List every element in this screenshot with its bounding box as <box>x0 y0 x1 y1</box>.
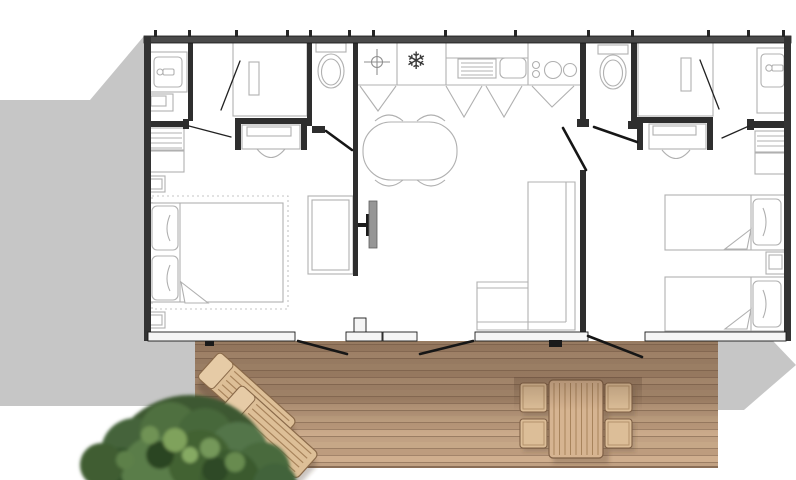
tv-bracket-bar <box>366 214 369 236</box>
dressing-table-top <box>247 127 291 136</box>
toilet-tank <box>316 43 346 52</box>
partition-wall-right <box>580 170 586 332</box>
wall-cap <box>747 119 754 130</box>
nook-wall <box>637 117 643 150</box>
master-closet <box>233 42 307 116</box>
tv-screen <box>369 201 377 248</box>
patio-center-post <box>354 318 366 333</box>
shelf-unit <box>149 128 184 150</box>
sill-segment <box>383 332 417 341</box>
dresser-top <box>312 200 349 270</box>
patio-center-base <box>346 332 382 341</box>
nightstand-top <box>150 315 162 325</box>
nook-wall <box>301 118 307 150</box>
toilet-tank <box>598 45 628 54</box>
nook-wall <box>707 117 713 150</box>
wc-right <box>598 45 628 89</box>
deck-chair <box>520 419 547 448</box>
faucet-handle <box>163 69 174 75</box>
pillow <box>753 281 781 327</box>
wardrobe <box>638 42 713 116</box>
wall <box>580 36 586 121</box>
pillow <box>753 199 781 245</box>
storage-cabinet <box>755 153 788 174</box>
sink-bowl <box>500 58 526 78</box>
wall <box>631 36 637 123</box>
wall-cap <box>183 119 189 129</box>
wall-cap <box>577 119 589 127</box>
dressing-table-top <box>653 126 696 135</box>
nightstand-top <box>769 255 782 269</box>
freezer-snowflake-icon: ❄ <box>406 47 426 75</box>
pillow <box>152 206 178 250</box>
toilet-seat <box>604 60 623 86</box>
pillow <box>152 256 178 300</box>
wardrobe-door-panel <box>249 62 259 95</box>
twin-closet <box>638 42 713 116</box>
wall <box>188 36 193 121</box>
wall <box>752 121 784 128</box>
outer-wall-right <box>784 36 791 341</box>
faucet-icon <box>157 69 163 75</box>
wc-left <box>316 43 346 88</box>
wall-jamb <box>312 126 325 133</box>
nightstand-top <box>150 179 162 189</box>
faucet-handle <box>772 65 783 71</box>
sill-segment <box>475 332 588 341</box>
wardrobe-door-panel <box>681 58 691 91</box>
storage-cabinet <box>149 151 184 172</box>
base-cabinet-door <box>151 96 166 106</box>
door-stop <box>205 341 214 346</box>
nook-wall <box>235 118 241 150</box>
deck-chair <box>605 419 632 448</box>
wardrobe <box>233 42 307 116</box>
tv-partition-wall <box>353 36 358 276</box>
twin-washroom <box>755 48 788 174</box>
wall <box>307 36 312 126</box>
floor-plan-drawing: ❄ <box>0 0 796 480</box>
floor-plan-canvas: ❄ <box>0 0 796 480</box>
faucet-icon <box>766 65 772 71</box>
sill-segment <box>645 332 786 341</box>
dining-table-oval <box>363 122 457 180</box>
outer-wall-left <box>144 36 151 341</box>
outer-wall-top <box>144 36 791 43</box>
mobile-home-unit: ❄ <box>144 30 791 357</box>
deck-dining-set <box>514 377 642 464</box>
nook-wall <box>637 117 713 123</box>
nook-wall <box>235 118 307 124</box>
door-stop <box>549 340 562 347</box>
toilet-seat <box>322 59 341 85</box>
dining-set-shade <box>514 377 642 411</box>
sill-segment <box>148 332 295 341</box>
